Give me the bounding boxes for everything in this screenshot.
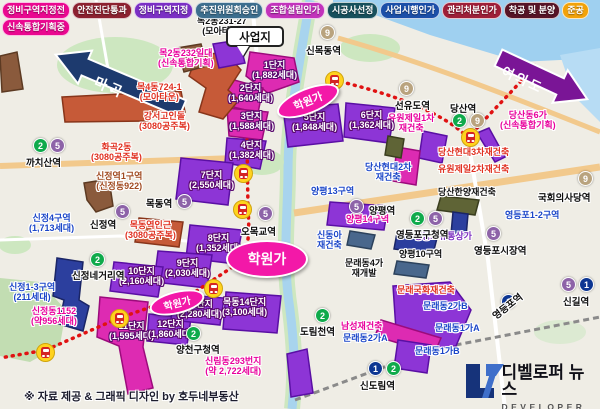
- subway-line-1-badge: 1: [368, 361, 383, 376]
- subway-line-5-badge: 5: [486, 226, 501, 241]
- complex-label: 9단지(2,030세대): [165, 258, 210, 278]
- complex-label: 목동14단지(3,100세대): [222, 297, 267, 317]
- region-label: 목4동724-1(모아타운): [137, 82, 182, 102]
- region-label: 당산현대2차재건축: [365, 162, 411, 182]
- subway-line-9-badge: 9: [470, 113, 485, 128]
- subway-line-5-badge: 5: [258, 206, 273, 221]
- region-label: 목동역인근(3080공주복): [125, 220, 176, 240]
- subway-line-2-badge: 2: [33, 138, 48, 153]
- region-label: 양평10구역: [399, 249, 442, 259]
- region-label: 문래동4가재개발: [345, 258, 383, 278]
- subway-line-2-badge: 2: [90, 252, 105, 267]
- station-label: 신길역: [563, 294, 589, 308]
- complex-label: 4단지(1,382세대): [229, 140, 274, 160]
- logo-subtitle: DEVELOPER NEWS: [501, 402, 600, 409]
- legend-row-2: 신속통합기획중: [2, 19, 70, 36]
- train-icon: [233, 200, 252, 219]
- legend-chip: 착공 및 분양: [504, 2, 560, 19]
- logo-title: 디벨로퍼 뉴스: [501, 364, 600, 398]
- region-label: 영등포1-2구역: [505, 210, 559, 220]
- station-label: 신정역: [90, 217, 116, 231]
- region-label: 신정동1152(약956세대): [31, 306, 77, 326]
- legend-row-1: 정비구역지정전안전진단통과정비구역지정추진위원회승인조합설립인가시공사선정사업시…: [2, 2, 589, 19]
- station-label: 양평역: [369, 203, 395, 217]
- subway-line-2-badge: 2: [386, 361, 401, 376]
- region-label: 신정4구역(1,713세대): [29, 213, 74, 233]
- legend-chip: 관리처분인가: [442, 2, 502, 19]
- region-label: 목2동232일대(신속통합기획): [158, 48, 214, 68]
- region-label: 화곡2동(3080공주복): [91, 142, 142, 162]
- station-label: 영등포시장역: [474, 243, 526, 257]
- station-label: 선유도역: [395, 98, 430, 112]
- train-icon: [110, 309, 129, 328]
- developer-news-logo: 디벨로퍼 뉴스 DEVELOPER NEWS: [466, 364, 600, 409]
- region-label: 강서고인돌(3080공주복): [139, 111, 190, 131]
- subway-line-5-badge: 5: [349, 199, 364, 214]
- legend-chip: 사업시행인가: [380, 2, 440, 19]
- complex-label: 1단지(1,882세대): [252, 60, 297, 80]
- map-stage: 정비구역지정전안전진단통과정비구역지정추진위원회승인조합설립인가시공사선정사업시…: [0, 0, 600, 409]
- complex-label: 2단지(1,640세대): [228, 83, 273, 103]
- legend-chip: 정비구역지정: [134, 2, 194, 19]
- station-label: 도림천역: [300, 324, 335, 338]
- region-label: 문래동1가B: [415, 346, 460, 356]
- region-label: 문래국화재건축: [397, 285, 455, 295]
- train-icon: [204, 279, 223, 298]
- legend-chip: 시공사선정: [327, 2, 378, 19]
- region-label: 신정역1구역(신정동922): [96, 171, 142, 191]
- project-site-callout: 사업지: [226, 26, 284, 47]
- train-icon: [461, 128, 480, 147]
- region-label: 양평13구역: [311, 186, 354, 196]
- parcel-left-edge-zone: [0, 52, 23, 92]
- parcel-yuwon-jeil1: [385, 136, 404, 158]
- subway-line-9-badge: 9: [578, 171, 593, 186]
- subway-line-2-badge: 2: [410, 211, 425, 226]
- subway-line-2-badge: 2: [315, 308, 330, 323]
- complex-label: 7단지(2,550세대): [189, 170, 234, 190]
- region-label: 남성재건축: [341, 321, 382, 331]
- region-label: 신정1-3구역(211세대): [9, 282, 55, 302]
- station-label: 목동역: [146, 196, 172, 210]
- subway-line-2-badge: 2: [452, 113, 467, 128]
- region-label: 신동아재건축: [317, 230, 342, 250]
- subway-line-9-badge: 9: [320, 25, 335, 40]
- region-label: 유원제일1차재건축: [388, 113, 434, 133]
- train-icon: [234, 164, 253, 183]
- station-label: 양천구청역: [176, 342, 220, 356]
- station-label: 신목동역: [306, 43, 341, 57]
- region-label: 신림동293번지(약 2,722세대): [205, 356, 261, 376]
- region-label: 문래동2가B: [423, 301, 468, 311]
- legend-chip: 준공: [562, 2, 589, 19]
- legend-chip: 신속통합기획중: [2, 19, 70, 36]
- legend-chip: 조합설립인가: [265, 2, 325, 19]
- project-site-label: 사업지: [239, 29, 271, 45]
- complex-label: 6단지(1,362세대): [349, 110, 394, 130]
- developer-news-logo-icon: [466, 364, 496, 400]
- station-label: 영등포구청역: [396, 227, 448, 241]
- station-label: 까치산역: [26, 155, 61, 169]
- parcel-yangpyeong-10: [394, 261, 429, 278]
- station-label: 오목교역: [241, 224, 276, 238]
- map-canvas: [0, 0, 600, 409]
- parcel-mullae-4ga: [347, 231, 375, 249]
- subway-line-5-badge: 5: [50, 138, 65, 153]
- subway-line-1-badge: 1: [579, 277, 594, 292]
- legend-chip: 추진위원회승인: [195, 2, 263, 19]
- complex-label: 10단지(2,160세대): [119, 266, 164, 286]
- station-label: 국회의사당역: [538, 190, 590, 204]
- subway-line-5-badge: 5: [177, 194, 192, 209]
- train-icon: [36, 343, 55, 362]
- legend-chip: 안전진단통과: [72, 2, 132, 19]
- region-label: 당산현대3차재건축: [438, 147, 509, 157]
- region-label: 문래동2가A: [343, 333, 388, 343]
- hakwon-area-badge: 학원가: [226, 240, 308, 278]
- station-label: 신정네거리역: [72, 268, 124, 282]
- region-label: 유원제일2차재건축: [438, 164, 509, 174]
- region-label: 문래동1가A: [435, 323, 480, 333]
- legend-chip: 정비구역지정전: [2, 2, 70, 19]
- station-label: 신도림역: [360, 378, 395, 392]
- subway-line-9-badge: 9: [399, 81, 414, 96]
- region-label: 당산동6가(신속통합기획): [500, 110, 556, 130]
- complex-label: 3단지(1,588세대): [229, 111, 274, 131]
- subway-line-2-badge: 2: [186, 326, 201, 341]
- callout-pointer: [237, 46, 249, 56]
- parcel-sindorim-block: [287, 349, 313, 397]
- subway-line-5-badge: 5: [561, 277, 576, 292]
- subway-line-5-badge: 5: [428, 211, 443, 226]
- region-label: 당산한양재건축: [438, 187, 496, 197]
- credit-text: ※ 자료 제공 & 그래픽 디자인 by 호두네부동산: [24, 388, 239, 404]
- subway-line-5-badge: 5: [115, 204, 130, 219]
- station-label: 당산역: [450, 101, 476, 115]
